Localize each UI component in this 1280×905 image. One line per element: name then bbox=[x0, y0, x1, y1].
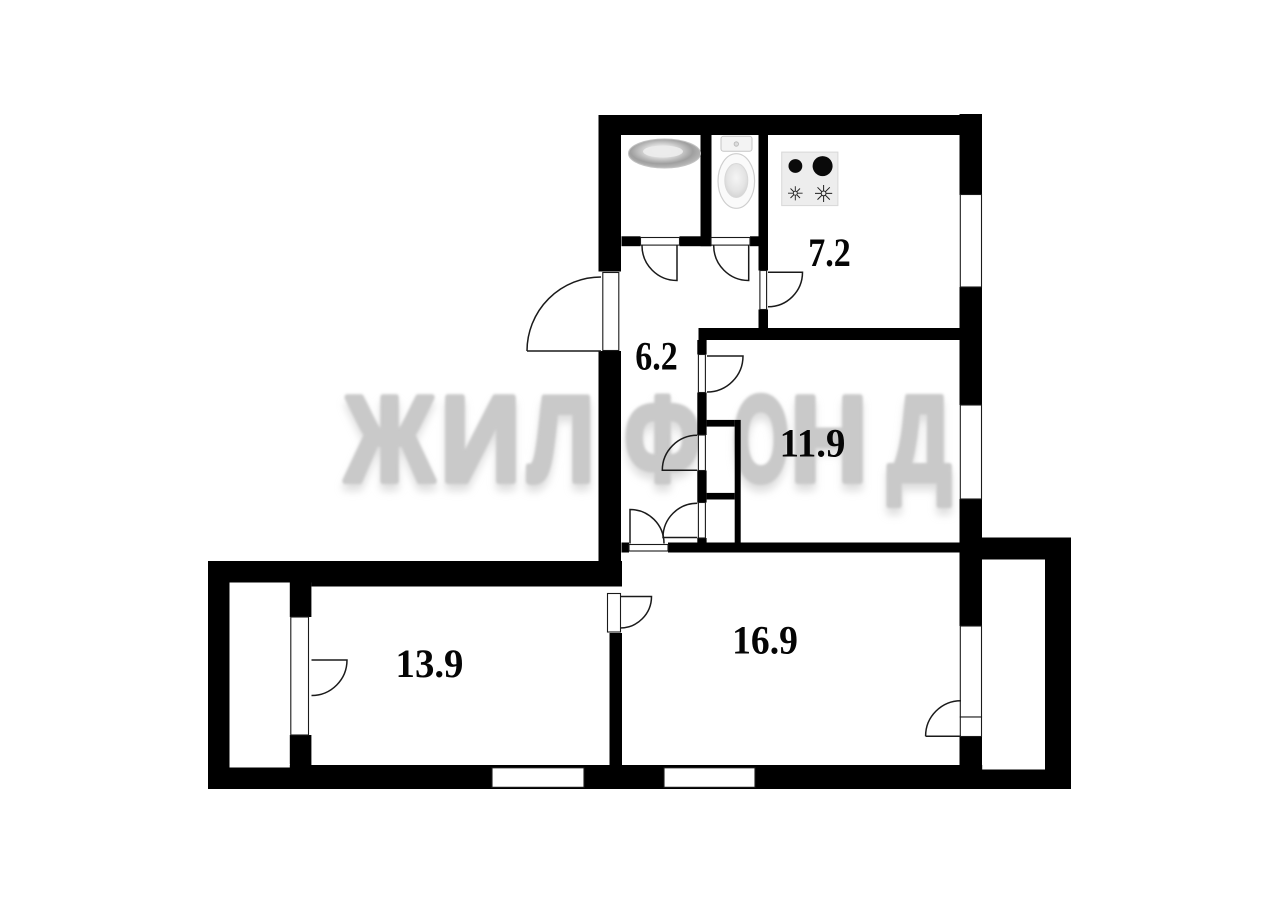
svg-text:16.9: 16.9 bbox=[732, 618, 798, 662]
svg-text:Ж: Ж bbox=[344, 372, 434, 507]
svg-text:6.2: 6.2 bbox=[635, 335, 677, 379]
svg-text:Л: Л bbox=[528, 371, 594, 507]
svg-text:И: И bbox=[441, 370, 521, 507]
svg-text:11.9: 11.9 bbox=[780, 421, 846, 466]
svg-text:13.9: 13.9 bbox=[396, 641, 464, 686]
svg-text:Д: Д bbox=[888, 370, 951, 507]
svg-text:Ф: Ф bbox=[625, 370, 701, 507]
svg-text:7.2: 7.2 bbox=[808, 232, 850, 276]
